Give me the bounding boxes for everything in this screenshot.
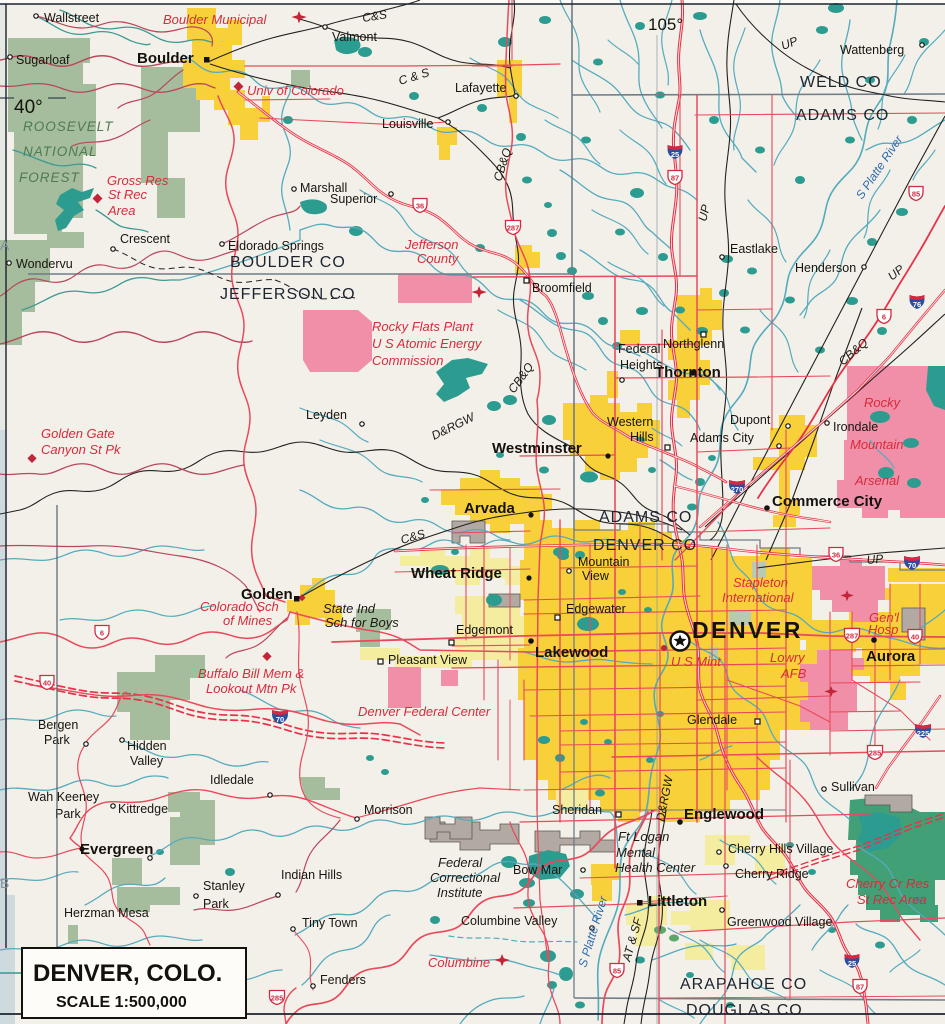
svg-text:Superior: Superior (330, 192, 377, 206)
svg-text:WELD CO: WELD CO (800, 74, 882, 91)
svg-text:Mountain: Mountain (850, 437, 903, 452)
svg-text:Cherry Ridge: Cherry Ridge (735, 867, 809, 881)
svg-text:287: 287 (507, 224, 520, 233)
svg-text:270: 270 (731, 485, 744, 494)
svg-text:Northglenn: Northglenn (663, 337, 724, 351)
svg-text:40: 40 (43, 679, 51, 688)
svg-text:Stanley: Stanley (203, 879, 245, 893)
svg-text:Aurora: Aurora (866, 648, 916, 665)
svg-text:Fenders: Fenders (320, 973, 366, 987)
svg-text:285: 285 (271, 994, 284, 1003)
svg-text:285: 285 (869, 749, 882, 758)
svg-text:JEFFERSON CO: JEFFERSON CO (220, 286, 356, 303)
svg-text:Boulder: Boulder (137, 50, 194, 67)
svg-text:Crescent: Crescent (120, 232, 171, 246)
svg-text:Englewood: Englewood (684, 806, 764, 823)
svg-text:Dupont: Dupont (730, 413, 771, 427)
svg-text:Adams City: Adams City (690, 431, 755, 445)
svg-text:85: 85 (613, 967, 621, 976)
svg-text:Golden Gate: Golden Gate (41, 426, 115, 441)
svg-text:85: 85 (912, 190, 920, 199)
svg-text:Mental: Mental (616, 845, 656, 860)
svg-text:287: 287 (846, 632, 859, 641)
svg-text:Colorado Sch: Colorado Sch (200, 599, 279, 614)
svg-text:View: View (582, 569, 610, 583)
svg-text:BOULDER CO: BOULDER CO (230, 254, 346, 271)
svg-text:Kittredge: Kittredge (118, 802, 168, 816)
svg-text:36: 36 (832, 551, 840, 560)
svg-text:Sugarloaf: Sugarloaf (16, 53, 70, 67)
svg-text:Wheat Ridge: Wheat Ridge (411, 565, 502, 582)
svg-text:Sch for Boys: Sch for Boys (325, 615, 399, 630)
svg-text:Rocky Flats Plant: Rocky Flats Plant (372, 319, 475, 334)
svg-text:Arsenal: Arsenal (854, 473, 900, 488)
svg-text:Evergreen: Evergreen (80, 841, 153, 858)
svg-text:225: 225 (917, 729, 930, 738)
svg-text:SCALE 1:500,000: SCALE 1:500,000 (56, 994, 187, 1011)
svg-text:St Rec Area: St Rec Area (857, 892, 927, 907)
svg-text:105°: 105° (648, 15, 683, 34)
svg-text:Sullivan: Sullivan (831, 780, 875, 794)
svg-text:Lafayette: Lafayette (455, 81, 506, 95)
svg-text:Edgewater: Edgewater (566, 602, 626, 616)
svg-text:Canyon St Pk: Canyon St Pk (41, 442, 122, 457)
svg-text:Herzman Mesa: Herzman Mesa (64, 906, 149, 920)
svg-text:Idledale: Idledale (210, 773, 254, 787)
svg-text:87: 87 (856, 983, 864, 992)
svg-text:Wallstreet: Wallstreet (44, 11, 100, 25)
svg-text:Morrison: Morrison (364, 803, 413, 817)
svg-text:DENVER CO: DENVER CO (593, 537, 697, 554)
svg-text:Eldorado Springs: Eldorado Springs (228, 239, 324, 253)
svg-text:Glendale: Glendale (687, 713, 737, 727)
svg-text:Correctional: Correctional (430, 870, 501, 885)
svg-text:ADAMS CO: ADAMS CO (796, 107, 889, 124)
svg-text:Ft Logan: Ft Logan (618, 829, 669, 844)
svg-text:B: B (0, 875, 9, 891)
svg-text:87: 87 (671, 174, 679, 183)
svg-text:Arvada: Arvada (464, 500, 516, 517)
svg-text:Valley: Valley (130, 754, 164, 768)
svg-text:AFB: AFB (780, 666, 807, 681)
svg-text:Denver Federal Center: Denver Federal Center (358, 704, 491, 719)
svg-text:Greenwood Village: Greenwood Village (727, 915, 832, 929)
svg-text:Buffalo Bill Mem &: Buffalo Bill Mem & (198, 666, 304, 681)
svg-text:6: 6 (882, 313, 886, 322)
svg-text:Irondale: Irondale (833, 420, 878, 434)
svg-text:40°: 40° (14, 97, 43, 118)
svg-text:Park: Park (55, 807, 81, 821)
svg-text:36: 36 (416, 202, 424, 211)
svg-text:U S Atomic Energy: U S Atomic Energy (372, 336, 483, 351)
svg-text:ADAMS CO: ADAMS CO (599, 509, 692, 526)
svg-text:Columbine Valley: Columbine Valley (461, 914, 558, 928)
svg-text:Littleton: Littleton (648, 893, 707, 910)
svg-text:Area: Area (107, 203, 135, 218)
svg-text:Hills: Hills (630, 430, 654, 444)
svg-text:DOUGLAS CO: DOUGLAS CO (686, 1002, 803, 1019)
svg-text:40: 40 (911, 633, 919, 642)
svg-text:DENVER: DENVER (692, 617, 803, 643)
svg-text:Louisville: Louisville (382, 117, 433, 131)
svg-text:Gross Res: Gross Res (107, 173, 169, 188)
svg-text:Cherry Hills Village: Cherry Hills Village (728, 842, 833, 856)
svg-text:Lowry: Lowry (770, 650, 806, 665)
svg-text:76: 76 (913, 300, 921, 309)
svg-text:Wah Keeney: Wah Keeney (28, 790, 100, 804)
svg-text:Broomfield: Broomfield (532, 281, 592, 295)
svg-text:Tiny Town: Tiny Town (302, 916, 358, 930)
svg-text:Lakewood: Lakewood (535, 644, 608, 661)
svg-text:County: County (417, 251, 460, 266)
svg-text:Western: Western (607, 415, 653, 429)
svg-text:Bow Mar: Bow Mar (513, 863, 562, 877)
svg-text:Commerce City: Commerce City (772, 493, 883, 510)
svg-text:Eastlake: Eastlake (730, 242, 778, 256)
svg-text:Thornton: Thornton (655, 364, 721, 381)
svg-text:Leyden: Leyden (306, 408, 347, 422)
svg-text:Columbine: Columbine (428, 955, 490, 970)
svg-text:Hidden: Hidden (127, 739, 167, 753)
svg-text:A: A (0, 237, 10, 253)
svg-text:Bergen: Bergen (38, 718, 78, 732)
svg-text:Sheridan: Sheridan (552, 803, 602, 817)
svg-text:Stapleton: Stapleton (733, 575, 788, 590)
svg-text:Westminster: Westminster (492, 440, 582, 457)
svg-text:Boulder Municipal: Boulder Municipal (163, 12, 267, 27)
svg-text:Jefferson: Jefferson (404, 237, 458, 252)
svg-text:Lookout Mtn Pk: Lookout Mtn Pk (206, 681, 298, 696)
svg-text:Pleasant View: Pleasant View (388, 653, 468, 667)
svg-text:Wattenberg: Wattenberg (840, 43, 904, 57)
svg-text:Commission: Commission (372, 353, 444, 368)
svg-text:Hosp: Hosp (868, 622, 898, 637)
svg-text:U S Mint: U S Mint (671, 654, 722, 669)
svg-text:ARAPAHOE CO: ARAPAHOE CO (680, 976, 807, 993)
svg-text:Wondervu: Wondervu (16, 257, 73, 271)
svg-text:NATIONAL: NATIONAL (23, 144, 98, 159)
svg-text:Health Center: Health Center (615, 860, 696, 875)
svg-text:25: 25 (848, 959, 856, 968)
svg-text:25: 25 (671, 150, 679, 159)
svg-text:Park: Park (203, 897, 229, 911)
svg-text:Valmont: Valmont (332, 30, 377, 44)
svg-text:St Rec: St Rec (108, 187, 148, 202)
svg-text:Indian Hills: Indian Hills (281, 868, 342, 882)
svg-text:Univ of Colorado: Univ of Colorado (247, 83, 344, 98)
svg-text:FOREST: FOREST (19, 170, 81, 185)
svg-text:DENVER, COLO.: DENVER, COLO. (33, 960, 222, 987)
svg-text:70: 70 (276, 715, 284, 724)
svg-text:Henderson: Henderson (795, 261, 856, 275)
svg-text:6: 6 (100, 629, 104, 638)
svg-text:State Ind: State Ind (323, 601, 376, 616)
svg-text:70: 70 (908, 561, 916, 570)
svg-text:Rocky: Rocky (864, 395, 902, 410)
svg-text:Institute: Institute (437, 885, 483, 900)
svg-text:ROOSEVELT: ROOSEVELT (23, 119, 114, 134)
svg-text:Federal: Federal (618, 342, 660, 356)
svg-text:of Mines: of Mines (223, 613, 273, 628)
svg-text:International: International (722, 590, 795, 605)
svg-text:Cherry Cr Res: Cherry Cr Res (846, 876, 930, 891)
svg-text:Edgemont: Edgemont (456, 623, 514, 637)
svg-text:UP: UP (866, 552, 884, 567)
svg-text:Federal: Federal (438, 855, 483, 870)
svg-text:Mountain: Mountain (578, 555, 629, 569)
